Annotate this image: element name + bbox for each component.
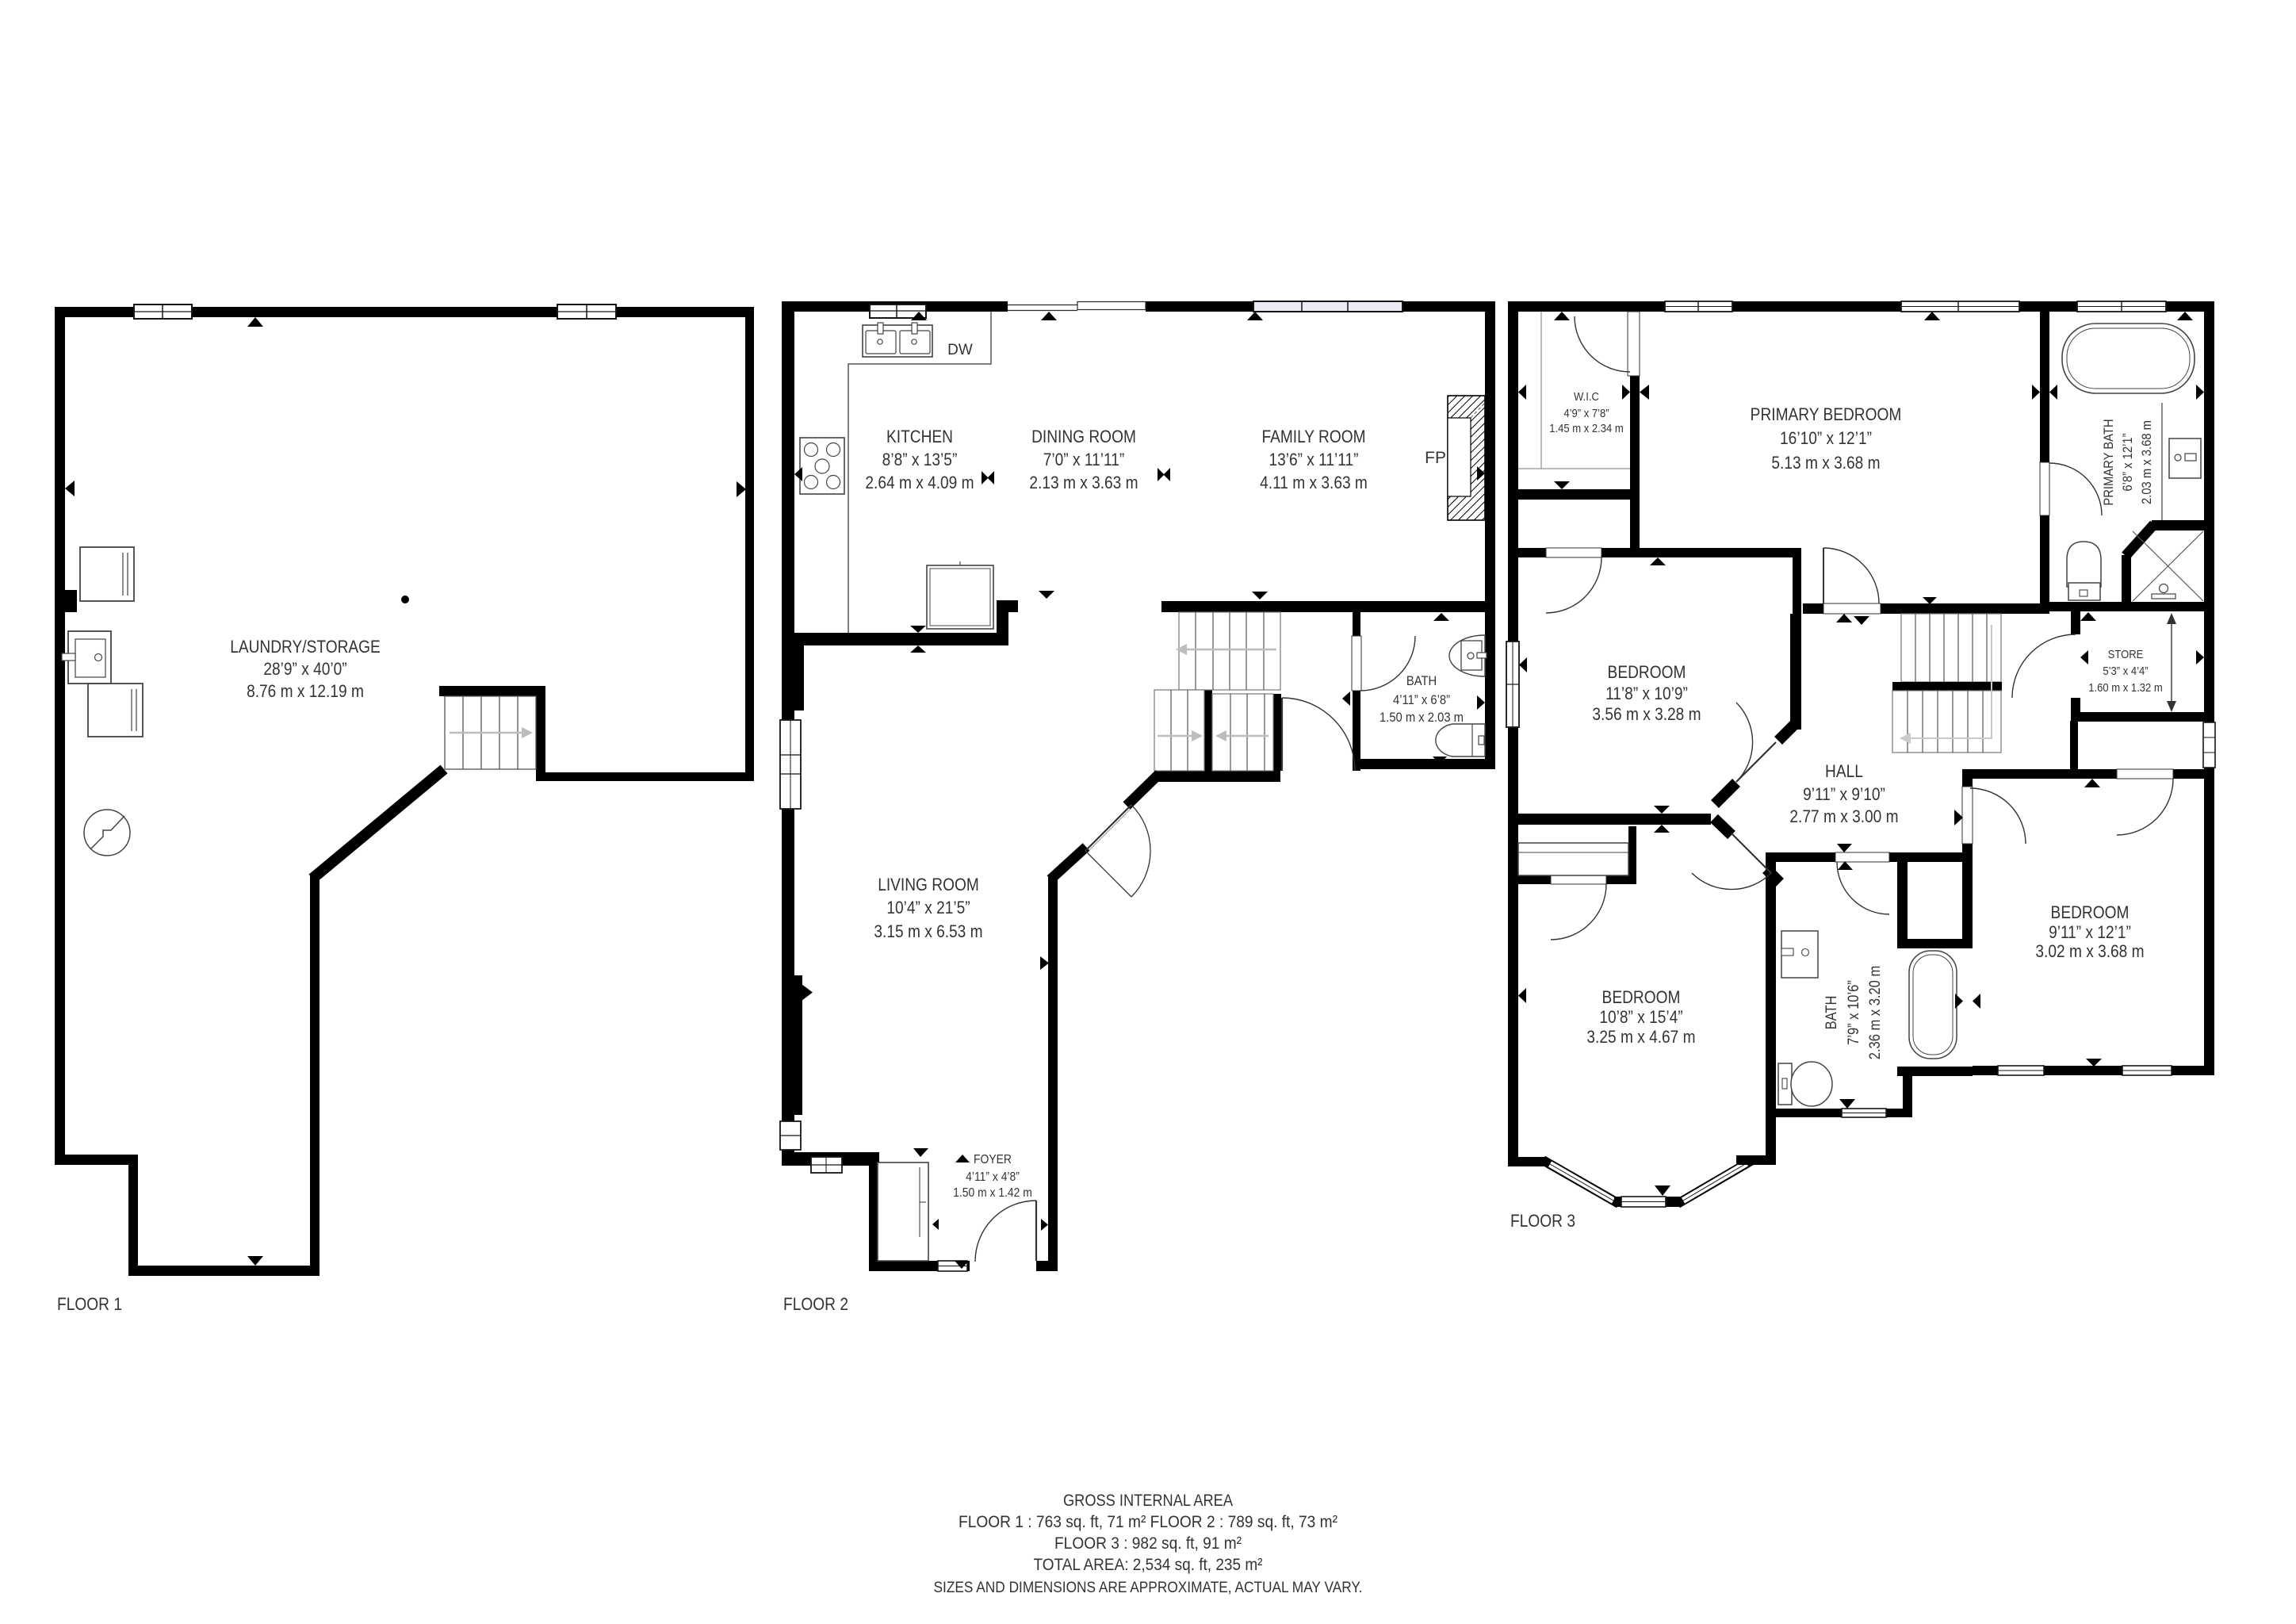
svg-text:7’9” x 10’6”: 7’9” x 10’6”: [1845, 980, 1862, 1045]
svg-text:13’6” x 11’11”: 13’6” x 11’11”: [1269, 450, 1358, 470]
svg-text:2.64 m x 4.09 m: 2.64 m x 4.09 m: [865, 473, 974, 493]
svg-text:5.13 m x 3.68 m: 5.13 m x 3.68 m: [1771, 454, 1880, 473]
svg-text:2.77 m x 3.00 m: 2.77 m x 3.00 m: [1789, 807, 1898, 827]
svg-text:1.50 m x 2.03 m: 1.50 m x 2.03 m: [1380, 710, 1464, 725]
svg-text:FLOOR 1: FLOOR 1: [57, 1294, 122, 1314]
svg-text:PRIMARY BEDROOM: PRIMARY BEDROOM: [1751, 405, 1902, 425]
svg-text:3.56 m x 3.28 m: 3.56 m x 3.28 m: [1592, 705, 1701, 725]
svg-text:4’11” x 6’8”: 4’11” x 6’8”: [1393, 693, 1450, 707]
svg-text:FLOOR 3: FLOOR 3: [1510, 1211, 1575, 1231]
svg-text:W.I.C: W.I.C: [1574, 389, 1599, 403]
svg-text:BATH: BATH: [1406, 674, 1437, 688]
svg-text:10’4” x 21’5”: 10’4” x 21’5”: [886, 898, 970, 918]
svg-text:FAMILY ROOM: FAMILY ROOM: [1261, 427, 1365, 447]
svg-text:LIVING ROOM: LIVING ROOM: [878, 875, 979, 895]
svg-text:STORE: STORE: [2108, 647, 2144, 661]
svg-text:KITCHEN: KITCHEN: [886, 427, 953, 447]
svg-text:BEDROOM: BEDROOM: [2051, 903, 2130, 923]
svg-text:11’8” x 10’9”: 11’8” x 10’9”: [1605, 684, 1688, 704]
svg-text:2.36 m x 3.20 m: 2.36 m x 3.20 m: [1866, 966, 1883, 1059]
svg-text:3.25 m x 4.67 m: 3.25 m x 4.67 m: [1586, 1028, 1695, 1048]
svg-text:16’10” x 12’1”: 16’10” x 12’1”: [1780, 429, 1872, 449]
svg-text:4.11 m x 3.63 m: 4.11 m x 3.63 m: [1260, 473, 1368, 493]
svg-text:DINING ROOM: DINING ROOM: [1031, 427, 1136, 447]
svg-text:7’0” x 11’11”: 7’0” x 11’11”: [1043, 450, 1125, 470]
svg-text:1.45 m x 2.34 m: 1.45 m x 2.34 m: [1549, 421, 1623, 435]
svg-text:8.76 m x 12.19 m: 8.76 m x 12.19 m: [247, 682, 364, 702]
svg-text:3.02 m x 3.68 m: 3.02 m x 3.68 m: [2035, 942, 2144, 962]
svg-text:BATH: BATH: [1823, 996, 1839, 1030]
svg-text:DW: DW: [947, 342, 973, 358]
svg-text:2.13 m x 3.63 m: 2.13 m x 3.63 m: [1029, 473, 1138, 493]
svg-text:3.15 m x 6.53 m: 3.15 m x 6.53 m: [874, 922, 982, 942]
svg-text:SIZES AND DIMENSIONS ARE APPRO: SIZES AND DIMENSIONS ARE APPROXIMATE, AC…: [934, 1580, 1363, 1596]
svg-text:2.03 m x 3.68 m: 2.03 m x 3.68 m: [2140, 420, 2154, 504]
svg-text:10’8” x 15’4”: 10’8” x 15’4”: [1599, 1008, 1682, 1028]
svg-text:FLOOR 1 : 763 sq. ft, 71 m² FL: FLOOR 1 : 763 sq. ft, 71 m² FLOOR 2 : 78…: [959, 1512, 1337, 1531]
svg-text:BEDROOM: BEDROOM: [1602, 988, 1681, 1008]
svg-text:8’8” x 13’5”: 8’8” x 13’5”: [882, 450, 958, 470]
svg-text:6’8” x 12’1”: 6’8” x 12’1”: [2121, 433, 2135, 491]
svg-text:LAUNDRY/STORAGE: LAUNDRY/STORAGE: [230, 638, 381, 657]
svg-text:FP: FP: [1425, 449, 1446, 467]
svg-text:9’11” x 12’1”: 9’11” x 12’1”: [2049, 923, 2131, 943]
svg-text:4’9” x 7’8”: 4’9” x 7’8”: [1563, 406, 1609, 419]
svg-text:5’3” x 4’4”: 5’3” x 4’4”: [2103, 664, 2149, 677]
svg-text:28’9” x 40’0”: 28’9” x 40’0”: [263, 660, 346, 680]
svg-text:FLOOR 3 : 982 sq. ft, 91 m²: FLOOR 3 : 982 sq. ft, 91 m²: [1054, 1534, 1242, 1553]
svg-text:1.60 m x 1.32 m: 1.60 m x 1.32 m: [2088, 680, 2162, 694]
svg-text:1.50 m x 1.42 m: 1.50 m x 1.42 m: [953, 1185, 1032, 1200]
svg-text:HALL: HALL: [1825, 762, 1863, 782]
svg-text:TOTAL AREA: 2,534 sq. ft, 235: TOTAL AREA: 2,534 sq. ft, 235 m²: [1034, 1555, 1263, 1574]
svg-text:FOYER: FOYER: [974, 1152, 1012, 1166]
svg-text:FLOOR 2: FLOOR 2: [783, 1294, 848, 1314]
svg-text:PRIMARY BATH: PRIMARY BATH: [2102, 419, 2116, 505]
svg-text:4’11” x 4’8”: 4’11” x 4’8”: [966, 1170, 1020, 1184]
svg-text:9’11” x 9’10”: 9’11” x 9’10”: [1803, 785, 1885, 805]
svg-text:GROSS INTERNAL AREA: GROSS INTERNAL AREA: [1063, 1491, 1234, 1510]
svg-text:BEDROOM: BEDROOM: [1608, 663, 1686, 683]
